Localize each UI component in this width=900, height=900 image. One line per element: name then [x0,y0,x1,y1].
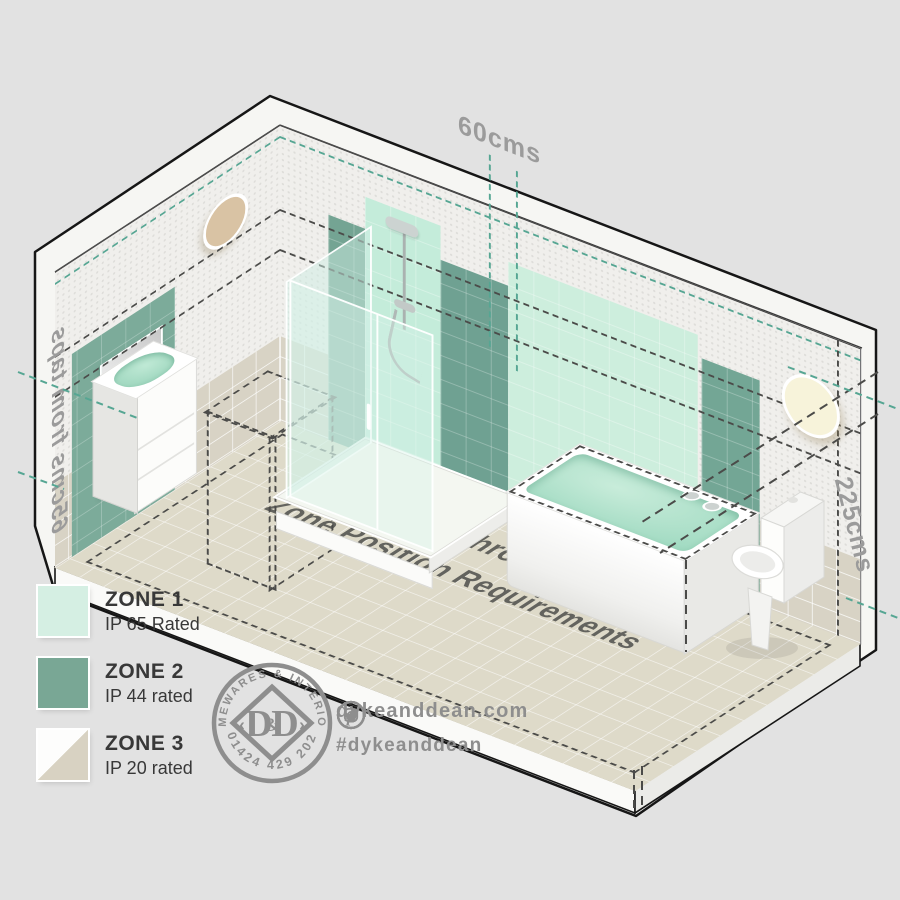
brand-footer: dykeanddean.com f p #dykeanddean [336,700,529,757]
dykeanddean-logo: HOMEWARES & INTERIORS 01424 429 202 ‹ › … [206,657,338,789]
zone3-rating: IP 20 rated [105,758,193,779]
zone3-title: ZONE 3 [105,732,193,756]
zone2-swatch [38,658,88,708]
svg-text:p: p [345,707,356,726]
logo-chevron-right: › [299,715,305,734]
zone1-title: ZONE 1 [105,588,200,612]
hashtag-text: #dykeanddean [336,735,529,757]
zone2-rating: IP 44 rated [105,686,193,707]
toilet [726,492,824,659]
infographic-canvas: IP Rated Bathroom Lighting Zone Position… [0,0,900,900]
zone1-rating: IP 65 Rated [105,614,200,635]
zone3-swatch [38,730,88,780]
zone1-swatch [38,586,88,636]
logo-chevron-left: ‹ [239,715,245,734]
pinterest-icon[interactable]: p [336,700,366,730]
zone-boundary-dashes [634,372,878,808]
zone-legend: ZONE 1 IP 65 Rated ZONE 2 IP 44 rated ZO… [38,586,200,802]
legend-row-zone3: ZONE 3 IP 20 rated [38,730,200,780]
legend-row-zone1: ZONE 1 IP 65 Rated [38,586,200,636]
legend-row-zone2: ZONE 2 IP 44 rated [38,658,200,708]
logo-monogram-ampersand: & [264,715,280,736]
zone2-title: ZONE 2 [105,660,193,684]
